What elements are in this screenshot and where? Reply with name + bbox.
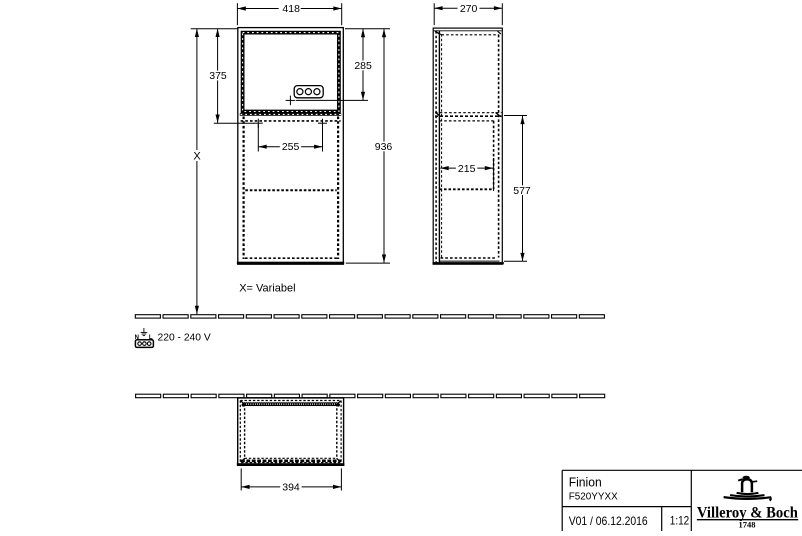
svg-text:418: 418	[282, 3, 300, 15]
svg-text:577: 577	[513, 185, 531, 197]
svg-text:F520YYXX: F520YYXX	[569, 492, 618, 503]
svg-text:220 - 240 V: 220 - 240 V	[158, 332, 211, 343]
svg-text:285: 285	[354, 60, 372, 72]
svg-text:375: 375	[209, 70, 227, 82]
svg-text:X= Variabel: X= Variabel	[239, 283, 295, 295]
svg-text:215: 215	[458, 163, 476, 175]
svg-text:936: 936	[375, 141, 393, 153]
svg-text:394: 394	[282, 481, 300, 493]
svg-text:1:12: 1:12	[670, 514, 690, 528]
svg-text:X: X	[193, 151, 201, 163]
svg-text:Finion: Finion	[569, 475, 602, 490]
svg-text:1748: 1748	[739, 519, 756, 529]
svg-text:V01 / 06.12.2016: V01 / 06.12.2016	[569, 514, 648, 528]
svg-text:255: 255	[282, 141, 300, 153]
svg-text:270: 270	[460, 3, 478, 15]
